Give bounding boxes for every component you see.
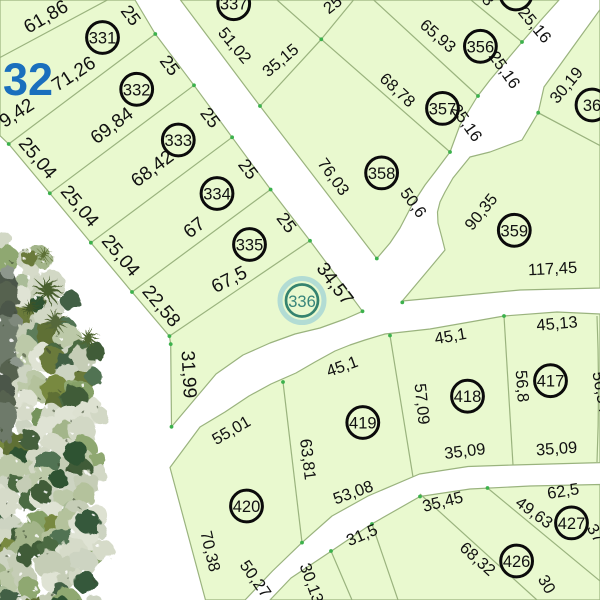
svg-text:333: 333 (165, 132, 193, 150)
svg-text:32: 32 (3, 54, 53, 105)
svg-text:35,09: 35,09 (535, 439, 577, 460)
svg-text:427: 427 (558, 515, 586, 533)
svg-text:334: 334 (203, 186, 231, 204)
svg-text:358: 358 (368, 165, 396, 183)
svg-text:45,13: 45,13 (536, 313, 579, 335)
svg-text:355: 355 (502, 0, 530, 4)
svg-text:359: 359 (501, 222, 529, 240)
svg-text:117,45: 117,45 (527, 259, 577, 280)
svg-text:426: 426 (503, 553, 531, 571)
svg-text:335: 335 (236, 237, 264, 255)
svg-text:337: 337 (220, 0, 248, 14)
svg-text:56,8: 56,8 (512, 370, 532, 403)
svg-text:417: 417 (537, 373, 565, 391)
svg-text:332: 332 (123, 81, 151, 99)
svg-text:336: 336 (288, 293, 316, 311)
svg-text:420: 420 (233, 498, 261, 516)
svg-text:418: 418 (454, 388, 482, 406)
svg-text:36: 36 (583, 97, 600, 115)
svg-text:419: 419 (349, 415, 377, 433)
svg-text:356: 356 (467, 38, 495, 56)
svg-text:357: 357 (429, 100, 457, 118)
svg-text:331: 331 (89, 30, 117, 48)
svg-text:31,99: 31,99 (176, 350, 199, 399)
